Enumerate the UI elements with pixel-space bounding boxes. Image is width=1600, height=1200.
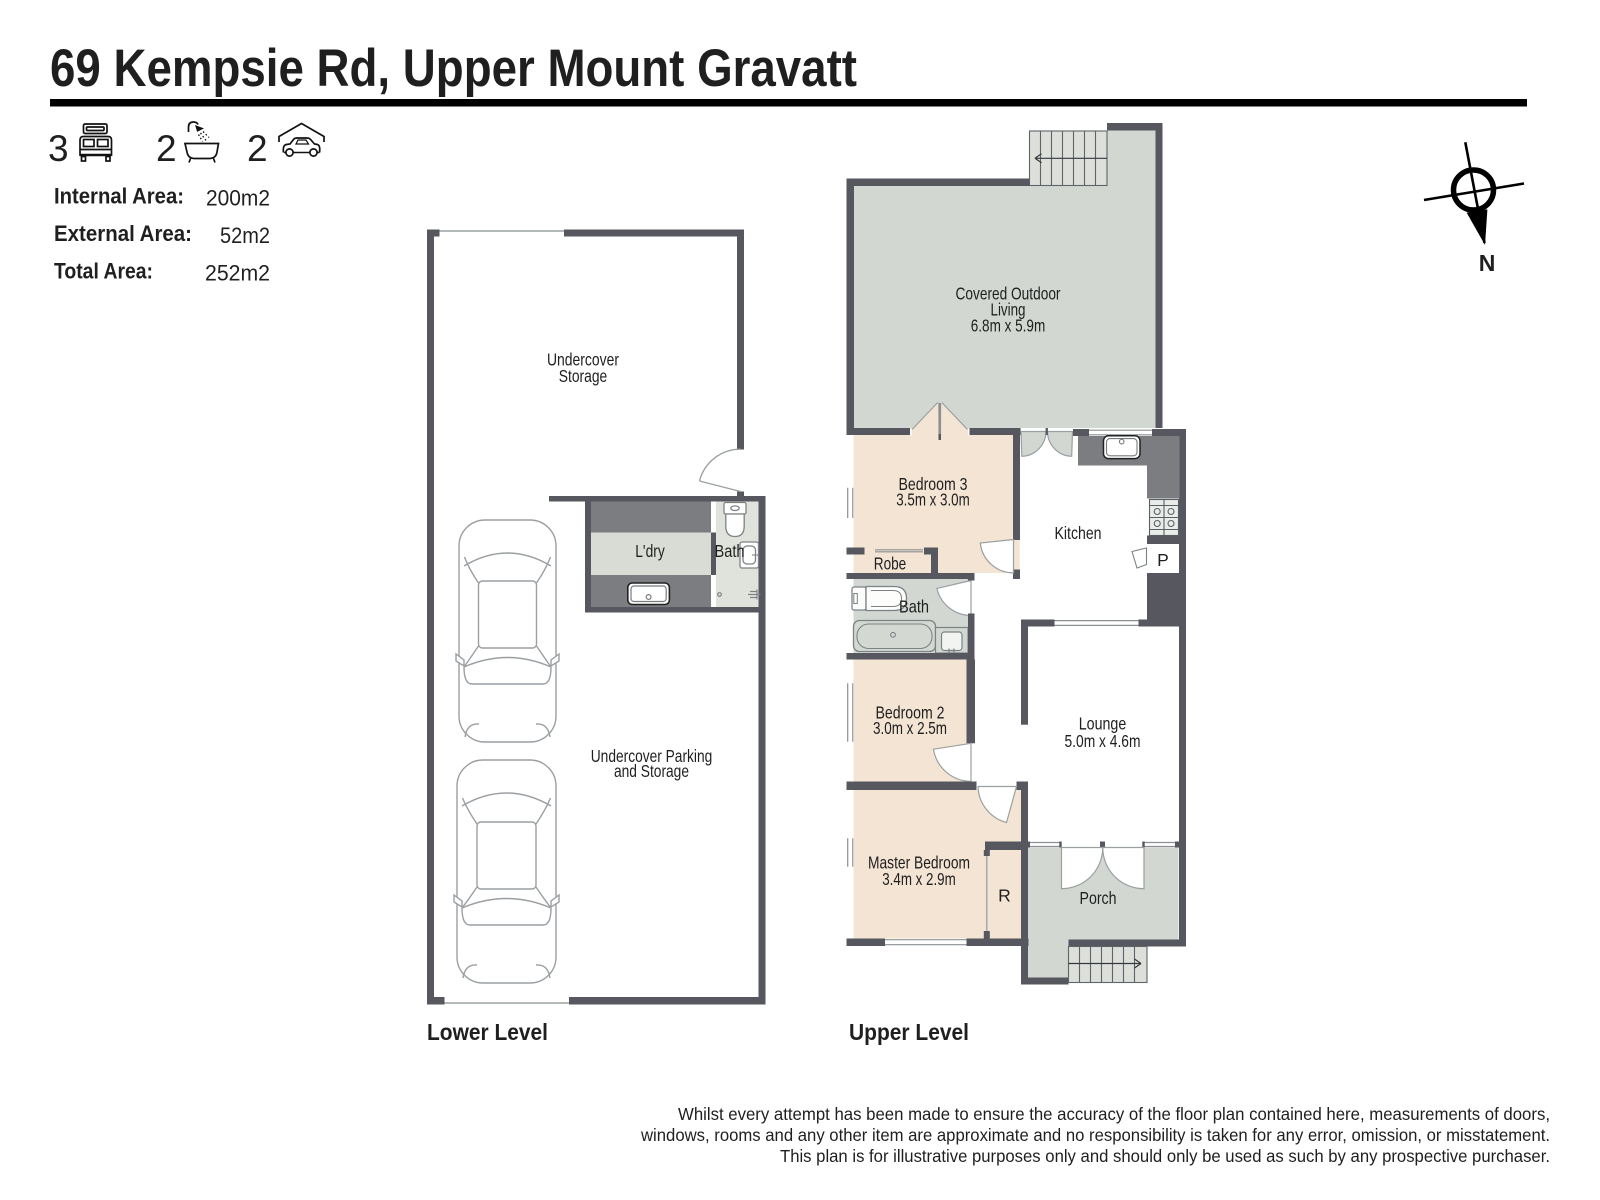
svg-text:Lower Level: Lower Level [427,1019,548,1045]
svg-text:windows, rooms and any other i: windows, rooms and any other item are ap… [640,1125,1550,1145]
svg-text:200m2: 200m2 [206,186,270,211]
svg-text:N: N [1479,250,1496,276]
svg-text:Storage: Storage [559,366,608,386]
svg-text:Bath: Bath [899,597,929,617]
svg-text:2: 2 [247,128,268,169]
svg-text:Robe: Robe [874,554,907,574]
svg-text:and Storage: and Storage [614,761,689,781]
svg-text:External Area:: External Area: [54,221,192,246]
svg-text:P: P [1157,550,1169,570]
svg-text:Porch: Porch [1080,888,1117,908]
svg-text:5.0m x 4.6m: 5.0m x 4.6m [1065,731,1141,751]
svg-text:3: 3 [48,128,69,169]
svg-text:R: R [998,886,1011,906]
svg-text:This plan is for illustrative: This plan is for illustrative purposes o… [780,1146,1550,1166]
svg-text:3.5m x 3.0m: 3.5m x 3.0m [896,490,970,510]
svg-text:Total Area:: Total Area: [54,259,153,284]
svg-text:2: 2 [156,128,177,169]
svg-text:3.4m x 2.9m: 3.4m x 2.9m [882,869,956,889]
svg-text:252m2: 252m2 [205,261,270,286]
svg-text:L'dry: L'dry [635,541,665,561]
svg-text:69 Kempsie Rd, Upper Mount Gra: 69 Kempsie Rd, Upper Mount Gravatt [50,39,857,98]
svg-text:Upper Level: Upper Level [849,1019,969,1045]
svg-text:3.0m x 2.5m: 3.0m x 2.5m [873,718,947,738]
svg-text:Internal Area:: Internal Area: [54,184,184,209]
svg-text:6.8m x 5.9m: 6.8m x 5.9m [971,316,1046,336]
svg-text:Bath: Bath [715,541,745,561]
svg-text:52m2: 52m2 [220,223,270,248]
svg-text:Kitchen: Kitchen [1055,523,1102,543]
svg-text:Whilst every attempt has been: Whilst every attempt has been made to en… [678,1104,1550,1124]
